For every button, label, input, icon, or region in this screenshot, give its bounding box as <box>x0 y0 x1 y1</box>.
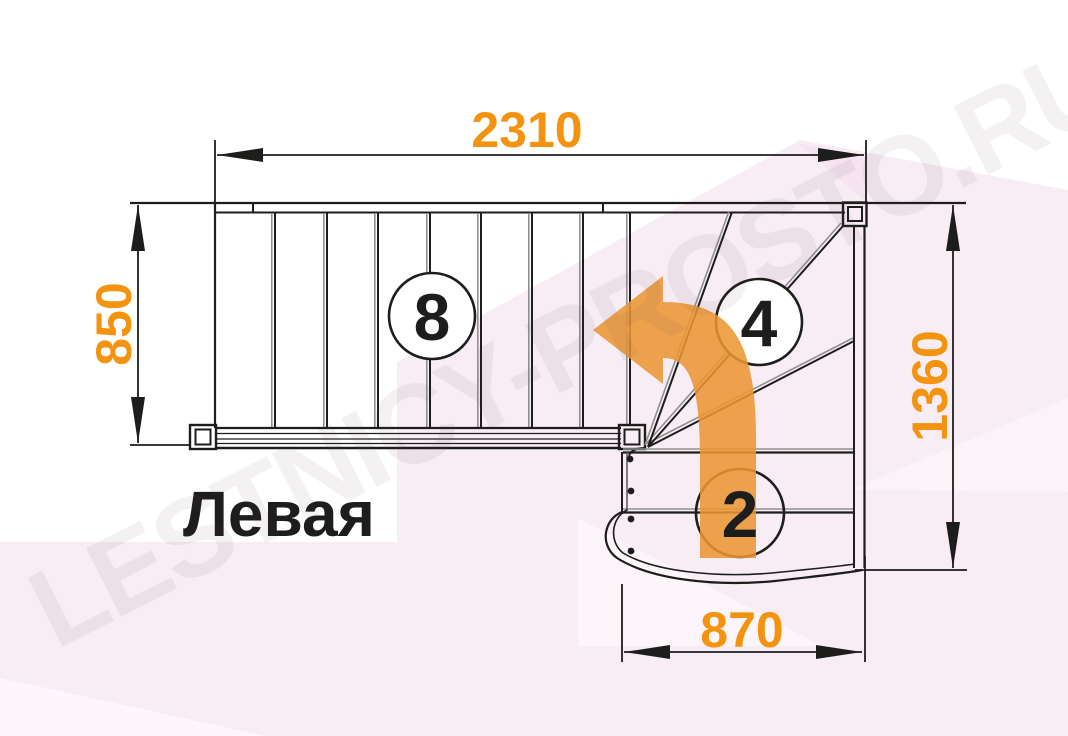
dimension-label-top: 2310 <box>471 102 582 158</box>
dimension-label-left: 850 <box>86 282 142 365</box>
badge-count-lower-flight: 2 <box>722 477 759 551</box>
dimension-label-right: 1360 <box>902 330 958 441</box>
dimension-label-bottom: 870 <box>700 602 783 658</box>
stair-plan-diagram: 2310 850 1360 870 8 4 2 Левая LESTNICY-P <box>0 0 1068 736</box>
